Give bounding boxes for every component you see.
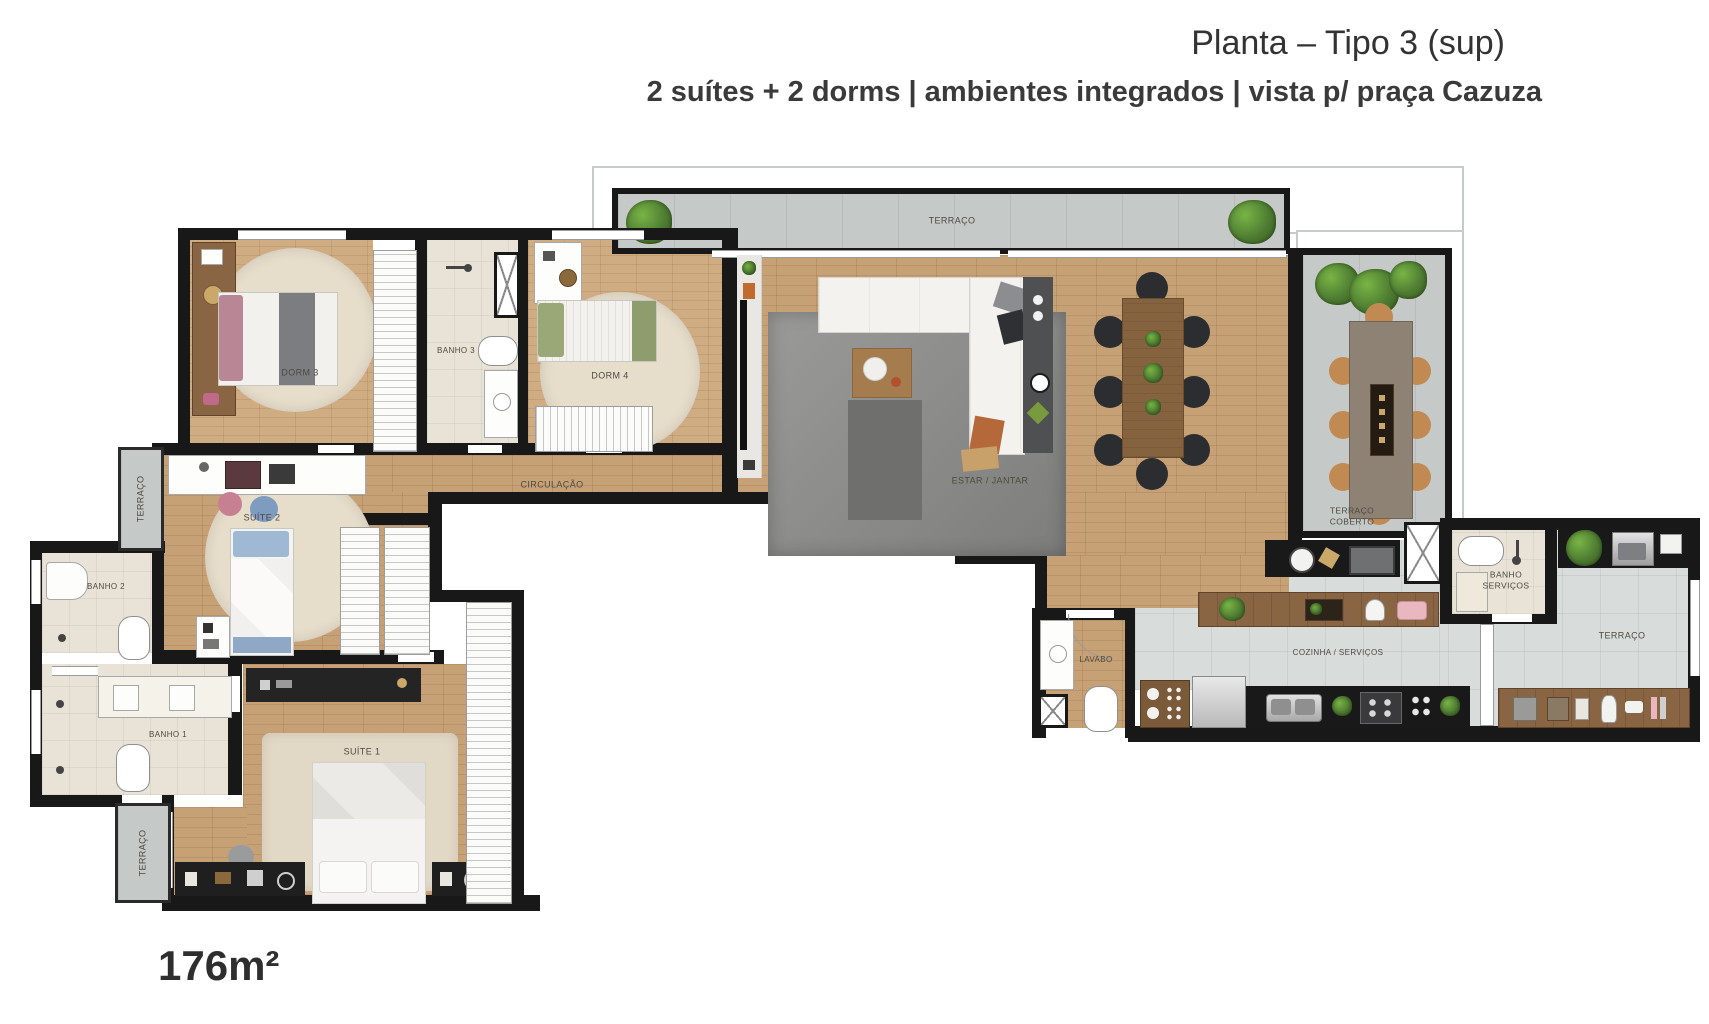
pillow — [371, 861, 419, 893]
toilet-banho-servicos — [1458, 536, 1504, 566]
label-banho2: BANHO 2 — [87, 582, 125, 592]
printer-icon — [269, 464, 295, 484]
decor-dot — [1379, 409, 1385, 415]
label-dorm4: DORM 4 — [591, 370, 628, 381]
wall — [30, 795, 122, 807]
label-lavabo: LAVABO — [1079, 655, 1112, 665]
kitchen-bar — [1198, 592, 1439, 627]
shower-head-icon — [56, 700, 64, 708]
shower-head-icon — [58, 634, 66, 642]
wall — [178, 228, 190, 458]
door-gap — [1492, 614, 1532, 622]
toilet-banho1 — [116, 744, 150, 792]
label-terraco-top: TERRAÇO — [929, 215, 976, 226]
pillow — [319, 861, 367, 893]
window — [552, 230, 644, 240]
decor-dot — [1379, 437, 1385, 443]
closet-suite1 — [466, 602, 512, 904]
page-title: Planta – Tipo 3 (sup) — [1191, 24, 1505, 63]
shower-head-icon — [464, 264, 472, 272]
decor-item — [559, 269, 577, 287]
cooktop — [1140, 680, 1190, 728]
tv-icon — [740, 300, 747, 450]
dining-table — [1122, 298, 1184, 458]
jar-icon — [1601, 695, 1617, 723]
plant-icon — [1145, 399, 1161, 415]
window — [31, 690, 41, 754]
closet-dorm4 — [535, 406, 653, 452]
vanity-banho1 — [98, 676, 232, 718]
bed-dorm4 — [537, 300, 657, 362]
suite1-sideboard — [175, 862, 305, 896]
decor-dot — [199, 462, 209, 472]
label-dorm3: DORM 3 — [281, 367, 318, 378]
vanity-lavabo — [1040, 620, 1074, 690]
sink-bowl — [1049, 645, 1067, 663]
page-subtitle: 2 suítes + 2 dorms | ambientes integrado… — [647, 76, 1542, 109]
toilet-banho3 — [478, 336, 518, 366]
closet-suite2 — [384, 527, 430, 655]
closet-suite2 — [340, 527, 380, 655]
decor-item — [201, 249, 223, 265]
table-runner — [1370, 384, 1394, 456]
bed-suite2 — [230, 528, 294, 656]
decor-item — [260, 680, 270, 690]
decor-item — [247, 870, 263, 886]
sink-bowl — [493, 393, 511, 411]
bed-dorm3 — [218, 292, 338, 386]
dishwasher — [1192, 676, 1246, 728]
decor-dot — [891, 377, 901, 387]
toaster-icon — [1397, 601, 1427, 620]
desk-chair — [218, 492, 242, 516]
plant-icon — [1566, 530, 1602, 566]
nightstand-suite2 — [196, 616, 230, 658]
label-banho1: BANHO 1 — [149, 730, 187, 740]
pillow — [219, 295, 243, 381]
desk-suite2 — [168, 455, 366, 495]
laundry-sink — [1612, 532, 1654, 566]
decor-item — [543, 251, 555, 261]
plant-icon — [1310, 603, 1322, 615]
label-circulacao: CIRCULAÇÃO — [520, 479, 583, 490]
blanket — [632, 301, 656, 361]
rug-shadow — [848, 400, 922, 520]
label-banho-servicos: BANHO SERVIÇOS — [1477, 569, 1535, 590]
sink-bowl — [1618, 543, 1646, 560]
plant-icon — [742, 261, 756, 275]
double-sink — [1266, 694, 1322, 722]
floor-plan-page: Planta – Tipo 3 (sup) 2 suítes + 2 dorms… — [0, 0, 1709, 1024]
wall — [1545, 518, 1557, 624]
shower-head-icon — [56, 766, 64, 774]
knob-grid — [1410, 694, 1432, 718]
pillow — [538, 303, 564, 357]
vanity-banho3 — [484, 370, 518, 438]
chair-icon — [1136, 458, 1168, 490]
label-suite1: SUÍTE 1 — [344, 746, 381, 757]
kitchen-top-counter — [1265, 540, 1400, 577]
wall — [428, 492, 442, 602]
decor-item — [743, 460, 755, 470]
cushion-tan — [961, 446, 999, 472]
label-terraco-inf: TERRAÇO — [137, 830, 148, 877]
wall — [1128, 726, 1700, 742]
decor-item — [1651, 697, 1657, 719]
shaft — [1038, 694, 1068, 728]
kitchen-bottom-counter — [1246, 686, 1470, 728]
outdoor-dining-table — [1349, 321, 1413, 519]
decor-dot — [397, 678, 407, 688]
tray-icon — [863, 357, 887, 381]
area-label: 176m² — [158, 942, 279, 990]
decor-dot — [277, 872, 295, 890]
decor-dot — [1030, 373, 1050, 393]
closet-dorm3 — [373, 250, 417, 452]
plant-icon — [1228, 200, 1276, 244]
burner — [1147, 688, 1159, 700]
window — [238, 230, 346, 240]
burner-grid — [1365, 697, 1395, 717]
label-suite2: SUÍTE 2 — [244, 512, 281, 523]
terrace-right-counter — [1558, 528, 1688, 568]
plant-icon — [1145, 331, 1161, 347]
toilet-lavabo — [1084, 686, 1118, 732]
coffee-table — [852, 348, 912, 398]
toilet-banho2 — [118, 616, 150, 660]
label-terraco-esq: TERRAÇO — [135, 476, 146, 523]
wall — [1288, 248, 1302, 544]
sink-bowl — [169, 685, 195, 711]
bowl-icon — [1289, 547, 1315, 573]
window — [1008, 250, 1286, 258]
plant-icon — [1389, 261, 1427, 299]
decor-item — [1575, 698, 1589, 720]
terraco-coberto — [1296, 248, 1452, 538]
burner-grid — [1165, 705, 1183, 721]
decor-item — [203, 393, 219, 405]
decor-item — [1625, 701, 1643, 713]
decor-dot — [1033, 295, 1043, 305]
label-banho3: BANHO 3 — [437, 346, 475, 356]
plant-icon — [1143, 363, 1163, 383]
burner-grid — [1165, 686, 1183, 702]
decor-item — [203, 639, 219, 649]
decor-item — [185, 872, 197, 886]
decor-item — [1318, 547, 1340, 569]
blanket — [233, 637, 291, 653]
decor-item — [743, 283, 755, 299]
plant-icon — [1219, 597, 1245, 621]
shower-box — [494, 252, 520, 318]
decor-item — [215, 872, 231, 884]
shaft — [1404, 522, 1442, 584]
sink-banho2 — [46, 562, 88, 600]
label-terraco-coberto: TERRAÇO COBERTO — [1320, 505, 1384, 526]
decor-item — [440, 872, 452, 886]
wall — [1125, 608, 1135, 738]
stove — [1360, 692, 1402, 724]
label-terraco-dir: TERRAÇO — [1599, 630, 1646, 641]
label-cozinha: COZINHA / SERVIÇOS — [1293, 648, 1384, 658]
shower-head-icon — [1512, 556, 1521, 565]
tv-console — [737, 255, 762, 478]
towel-rack — [52, 666, 98, 676]
decor-item — [276, 680, 292, 688]
sink-bowl — [1295, 699, 1315, 715]
wall — [428, 590, 524, 602]
door-gap — [318, 445, 354, 453]
window — [1690, 580, 1700, 676]
plant-icon — [1440, 696, 1460, 716]
door-leaf — [1480, 624, 1494, 726]
wall — [152, 541, 164, 662]
decor-item — [1660, 697, 1666, 719]
decor-dot — [1379, 395, 1385, 401]
window — [31, 560, 41, 604]
decor-item — [1547, 697, 1569, 721]
decor-diamond — [1027, 402, 1050, 425]
blanket — [313, 763, 425, 819]
label-estar-jantar: ESTAR / JANTAR — [952, 475, 1029, 486]
door-gap — [468, 445, 502, 453]
decor-item — [1660, 534, 1682, 554]
suite1-console — [246, 668, 421, 702]
plant-icon — [1332, 696, 1352, 716]
kettle-icon — [1365, 599, 1385, 621]
grill-icon — [1349, 546, 1395, 575]
duvet — [231, 559, 293, 637]
decor-dot — [1033, 311, 1043, 321]
sink-bowl — [1271, 699, 1291, 715]
tray-icon — [1305, 599, 1343, 621]
monitor-icon — [225, 461, 261, 489]
terrace-right-shelf — [1498, 688, 1690, 728]
pillow — [233, 531, 289, 557]
desk-dorm4 — [534, 242, 582, 304]
wall — [510, 602, 524, 907]
burner — [1147, 707, 1159, 719]
bed-suite1 — [312, 762, 426, 904]
decor-dot — [1379, 423, 1385, 429]
decor-item — [203, 623, 213, 633]
sink-bowl — [113, 685, 139, 711]
decor-item — [1513, 697, 1537, 721]
sofa-side-console — [1023, 277, 1053, 453]
